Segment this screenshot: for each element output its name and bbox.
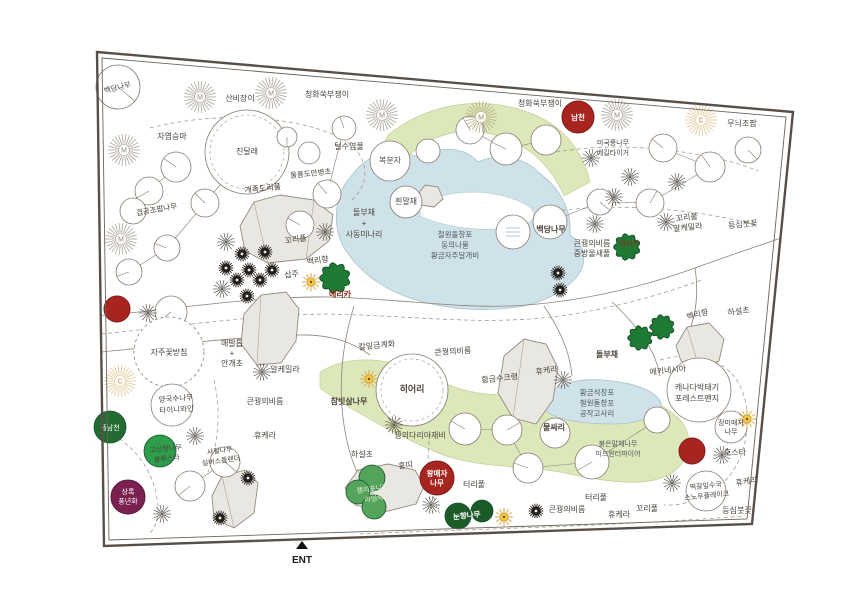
- plant-label: 히어리: [400, 383, 425, 394]
- pom-spike: [264, 256, 265, 259]
- star-center: [261, 371, 263, 373]
- red-shrub-circle: [104, 296, 130, 322]
- tree-circle: [490, 133, 522, 165]
- plant-label: 복분자: [379, 156, 402, 165]
- tree-circle: [636, 189, 664, 217]
- pom-center: [246, 295, 249, 298]
- star-center: [225, 241, 227, 243]
- pom-center: [248, 269, 251, 272]
- tree-canopy: [644, 407, 670, 433]
- pom-spike: [250, 274, 251, 277]
- pom-spike: [241, 258, 242, 261]
- pom-spike: [249, 482, 250, 485]
- pom-spike: [246, 289, 247, 292]
- star-center: [161, 513, 163, 515]
- pom-center: [247, 477, 250, 480]
- plant-label: 에리카: [329, 289, 352, 299]
- pom-center: [236, 279, 239, 282]
- tree-canopy: [298, 142, 320, 164]
- pom-center: [535, 510, 538, 513]
- tree-circle: [332, 116, 356, 140]
- pom-spike: [246, 300, 247, 303]
- star-center: [721, 454, 723, 456]
- pom-spike: [264, 245, 265, 248]
- star-center: [613, 196, 615, 198]
- sunburst-letter: M: [121, 148, 127, 155]
- pom-spike: [243, 258, 244, 261]
- pom-spike: [557, 266, 558, 269]
- entrance-arrow-icon: [296, 541, 308, 549]
- pom-spike: [259, 284, 260, 287]
- pom-spike: [241, 247, 242, 250]
- pom-center: [557, 272, 560, 275]
- pom-spike: [535, 504, 536, 507]
- pom-spike: [535, 515, 536, 518]
- sunburst-letter: C: [117, 379, 122, 386]
- tree-circle: [449, 413, 481, 445]
- pom-spike: [250, 263, 251, 266]
- pom-spike: [221, 511, 222, 514]
- sunburst-letter: M: [478, 115, 484, 122]
- entrance-label: ENT: [292, 555, 312, 566]
- sunburst-letter: C: [698, 118, 703, 125]
- star-center: [665, 221, 667, 223]
- pom-spike: [559, 277, 560, 280]
- pom-spike: [561, 283, 562, 286]
- plant-label: 휴케라: [608, 510, 631, 519]
- tree-circle: [496, 215, 530, 249]
- pom-spike: [236, 284, 237, 287]
- tree-circle: [531, 125, 561, 155]
- sunburst-letter: M: [268, 91, 274, 98]
- pom-spike: [537, 504, 538, 507]
- star-center: [562, 379, 564, 381]
- tree-canopy: [531, 125, 561, 155]
- pom-spike: [248, 263, 249, 266]
- tree-circle: [161, 152, 191, 182]
- pom-spike: [271, 263, 272, 266]
- pom-spike: [248, 300, 249, 303]
- pom-spike: [557, 277, 558, 280]
- tree-circle: [416, 139, 440, 163]
- sunburst-letter: M: [614, 113, 620, 120]
- pom-spike: [273, 274, 274, 277]
- plant-label: 휴케라: [254, 431, 277, 440]
- tree-circle: [298, 142, 320, 164]
- pom-spike: [219, 511, 220, 514]
- pom-spike: [238, 273, 239, 276]
- plant-label: 물싸리: [543, 422, 565, 432]
- star-center: [590, 157, 592, 159]
- plant-label: 터리풀: [463, 480, 485, 489]
- pom-spike: [225, 272, 226, 275]
- plant-label: 호스타: [724, 448, 747, 457]
- pom-center: [559, 289, 562, 292]
- plant-label: 털수염풀: [334, 141, 363, 151]
- sun-dot: [368, 378, 370, 380]
- plant-label: 하설초: [351, 449, 373, 459]
- tree-canopy: [416, 139, 440, 163]
- pom-center: [225, 267, 228, 270]
- tree-circle: [116, 259, 142, 285]
- sunburst-letter: M: [379, 113, 385, 120]
- pom-spike: [248, 289, 249, 292]
- tree-circle: [735, 137, 761, 163]
- plant-label: 알케밀라: [270, 364, 300, 374]
- pom-spike: [243, 247, 244, 250]
- star-center: [430, 504, 432, 506]
- tree-circle: [492, 415, 522, 445]
- star-center: [194, 435, 196, 437]
- pom-spike: [537, 515, 538, 518]
- tree-circle: [277, 127, 297, 147]
- star-center: [324, 231, 326, 233]
- pom-spike: [559, 283, 560, 286]
- tree-circle: [649, 134, 677, 162]
- plant-label: 꼬리풀: [636, 504, 658, 513]
- pom-spike: [238, 284, 239, 287]
- plant-label: 청화쑥부쟁이: [518, 98, 562, 108]
- pom-spike: [225, 261, 226, 264]
- star-center: [676, 181, 678, 183]
- star-center: [629, 176, 631, 178]
- plant-label: 흰말채: [395, 196, 417, 206]
- pom-spike: [247, 471, 248, 474]
- pom-center: [259, 279, 262, 282]
- plant-label: 남천: [571, 112, 585, 122]
- tree-circle: [191, 189, 219, 217]
- pom-spike: [221, 522, 222, 525]
- tree-circle: [644, 407, 670, 433]
- red-shrub-circle: [679, 438, 705, 464]
- tree-circle: [175, 471, 205, 501]
- plant-label: 터리풀: [585, 493, 607, 502]
- star-center: [671, 482, 673, 484]
- pom-center: [271, 269, 274, 272]
- pom-spike: [236, 273, 237, 276]
- pom-spike: [259, 273, 260, 276]
- plant-label: 황금석창포철원돌창포공작고사리: [580, 387, 615, 418]
- tree-circle: [587, 189, 613, 215]
- tree-circle: [154, 235, 180, 261]
- pom-spike: [561, 294, 562, 297]
- star-center: [594, 223, 596, 225]
- plant-label: 산비장이: [225, 93, 254, 103]
- plant-label: 홍띠: [398, 459, 414, 471]
- pom-spike: [248, 274, 249, 277]
- star-center: [393, 424, 395, 426]
- pom-spike: [266, 245, 267, 248]
- sunburst-letter: M: [118, 237, 124, 244]
- plant-label: 무늬조팝: [727, 118, 757, 128]
- plant-label: 자엽승마: [157, 131, 187, 141]
- pom-center: [264, 251, 267, 254]
- plant-label: 백당나무: [536, 224, 566, 234]
- plant-label: 돌부채: [596, 349, 618, 359]
- plant-label: 청화쑥부쟁이: [305, 89, 349, 99]
- pom-spike: [249, 471, 250, 474]
- plant-label: 꿩의다리아재비: [394, 430, 446, 440]
- plant-label: 참빗살나무: [331, 396, 368, 406]
- plant-label: 큰꿩의비름: [247, 396, 284, 406]
- star-center: [147, 312, 149, 314]
- star-center: [221, 288, 223, 290]
- sun-dot: [310, 281, 312, 283]
- pom-center: [219, 517, 222, 520]
- pom-spike: [261, 284, 262, 287]
- pom-spike: [559, 294, 560, 297]
- sun-dot: [746, 418, 748, 420]
- planting-plan-screenshot: MMMMMMMCC백당나무산비장이청화쑥부쟁이청화쑥부쟁이무늬조팝자엽승마진달래…: [0, 0, 850, 600]
- plant-label: 자주꽃받침: [151, 347, 188, 357]
- maroon-shrub-circle: [111, 480, 145, 514]
- tree-circle: [695, 152, 725, 182]
- pom-spike: [261, 273, 262, 276]
- pom-spike: [227, 261, 228, 264]
- pom-spike: [559, 266, 560, 269]
- pom-spike: [227, 272, 228, 275]
- pom-spike: [247, 482, 248, 485]
- pom-spike: [219, 522, 220, 525]
- tree-circle: [513, 453, 543, 483]
- plant-label: 에리카: [619, 239, 640, 248]
- plant-label: 큰꿩의비름: [549, 504, 586, 514]
- pom-center: [241, 253, 244, 256]
- tree-circle: [313, 180, 341, 208]
- sunburst-letter: M: [197, 95, 203, 102]
- planting-plan: MMMMMMMCC백당나무산비장이청화쑥부쟁이청화쑥부쟁이무늬조팝자엽승마진달래…: [0, 0, 850, 600]
- plant-label: 진달래: [236, 146, 258, 156]
- pom-spike: [271, 274, 272, 277]
- sun-dot: [503, 516, 505, 518]
- pom-spike: [273, 263, 274, 266]
- pom-spike: [266, 256, 267, 259]
